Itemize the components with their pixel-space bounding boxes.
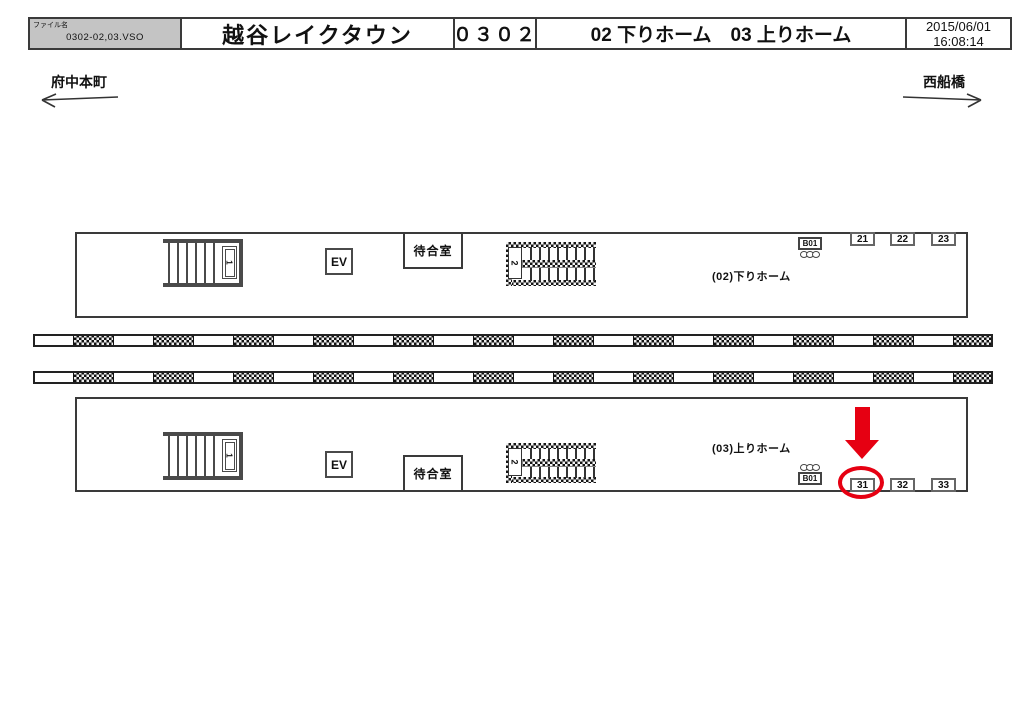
file-name-label: ファイル名 (33, 20, 68, 30)
sign-label-box: B01 (799, 473, 821, 484)
sign-position-32[interactable]: 32 (890, 478, 915, 492)
track-hatch-segment (153, 372, 194, 383)
stair-number: 1 (225, 260, 234, 264)
stair-number: 2 (510, 260, 520, 265)
file-name-cell: ファイル名 0302-02,03.VSO (30, 19, 182, 48)
elevator-box: EV (325, 451, 353, 478)
direction-right-label: 西船橋 (923, 74, 965, 90)
track-hatch-segment (313, 335, 354, 346)
direction-left-label: 府中本町 (51, 74, 107, 90)
track-hatch-segment (473, 335, 514, 346)
station-platform-map: ファイル名 0302-02,03.VSO 越谷レイクタウン ０３０２ 02 下り… (0, 0, 1024, 724)
track-hatch-segment (793, 335, 834, 346)
platform-down: 1 EV 待合室 2 (02)下りホーム B01 21 22 23 (75, 232, 968, 318)
stair-number: 1 (225, 453, 234, 457)
platforms-title: 02 下りホーム 03 上りホーム (537, 19, 907, 48)
track-hatch-segment (713, 372, 754, 383)
waiting-room-label: 待合室 (413, 242, 452, 259)
left-arrow-icon (34, 92, 120, 109)
stair-number-box: 2 (508, 247, 522, 279)
track-hatch-segment (393, 335, 434, 346)
track-hatch-segment (873, 335, 914, 346)
hatch-band (510, 459, 596, 467)
stairs-icon: 1 (163, 432, 243, 480)
track-hatch-segment (73, 372, 114, 383)
track-hatch-segment (313, 372, 354, 383)
highlight-arrow-head-icon (845, 440, 879, 459)
file-name-value: 0302-02,03.VSO (30, 32, 180, 43)
highlight-arrow-icon (855, 407, 870, 440)
direction-right: 西船橋 (899, 72, 989, 109)
hatched-stairs-icon: 2 (506, 242, 596, 286)
platform-up: 1 EV 待合室 2 (03)上りホーム B01 31 32 33 (75, 397, 968, 492)
escalator-icon: 1 (222, 246, 237, 279)
stairs-icon: 1 (163, 239, 243, 287)
elevator-label: EV (331, 458, 347, 472)
stair-number-box: 2 (508, 448, 522, 476)
track-hatch-segment (553, 335, 594, 346)
stair-treads (168, 243, 218, 283)
platform-down-label: (02)下りホーム (712, 268, 791, 284)
sign-label-box: B01 (799, 238, 821, 249)
track-hatch-segment (153, 335, 194, 346)
track-hatch-segment (553, 372, 594, 383)
track-hatch-segment (713, 335, 754, 346)
track-hatch-segment (873, 372, 914, 383)
waiting-room-box: 待合室 (403, 232, 463, 269)
track-hatch-segment (73, 335, 114, 346)
elevator-box: EV (325, 248, 353, 275)
title-bar: ファイル名 0302-02,03.VSO 越谷レイクタウン ０３０２ 02 下り… (28, 17, 1012, 50)
sign-position-22[interactable]: 22 (890, 232, 915, 246)
hatched-stairs-icon: 2 (506, 443, 596, 483)
sign-position-23[interactable]: 23 (931, 232, 956, 246)
track-hatch-segment (953, 372, 993, 383)
platform-up-label: (03)上りホーム (712, 440, 791, 456)
track-hatch-segment (953, 335, 993, 346)
datetime-cell: 2015/06/01 16:08:14 (907, 19, 1010, 48)
track-hatch-segment (473, 372, 514, 383)
hatch-band (510, 260, 596, 268)
date-text: 2015/06/01 (926, 19, 991, 34)
track-hatch-segment (633, 372, 674, 383)
right-arrow-icon (899, 92, 989, 109)
sign-position-21[interactable]: 21 (850, 232, 875, 246)
track-line-1 (33, 334, 993, 347)
track-line-2 (33, 371, 993, 384)
track-hatch-segment (793, 372, 834, 383)
stair-treads (168, 436, 218, 476)
stair-number: 2 (510, 459, 520, 464)
track-hatch-segment (233, 335, 274, 346)
track-hatch-segment (233, 372, 274, 383)
station-code: ０３０２ (455, 19, 537, 48)
waiting-room-label: 待合室 (413, 465, 452, 482)
direction-left: 府中本町 (34, 72, 124, 109)
sign-dots-icon (801, 251, 819, 258)
sign-position-B01[interactable]: B01 (797, 464, 823, 486)
track-hatch-segment (633, 335, 674, 346)
station-name: 越谷レイクタウン (182, 19, 455, 48)
waiting-room-box: 待合室 (403, 455, 463, 492)
track-hatch-segment (393, 372, 434, 383)
sign-dots-icon (801, 464, 819, 471)
sign-position-B01[interactable]: B01 (797, 236, 823, 258)
sign-position-33[interactable]: 33 (931, 478, 956, 492)
sign-position-31[interactable]: 31 (850, 478, 875, 492)
elevator-label: EV (331, 255, 347, 269)
time-text: 16:08:14 (933, 34, 984, 49)
escalator-icon: 1 (222, 439, 237, 472)
